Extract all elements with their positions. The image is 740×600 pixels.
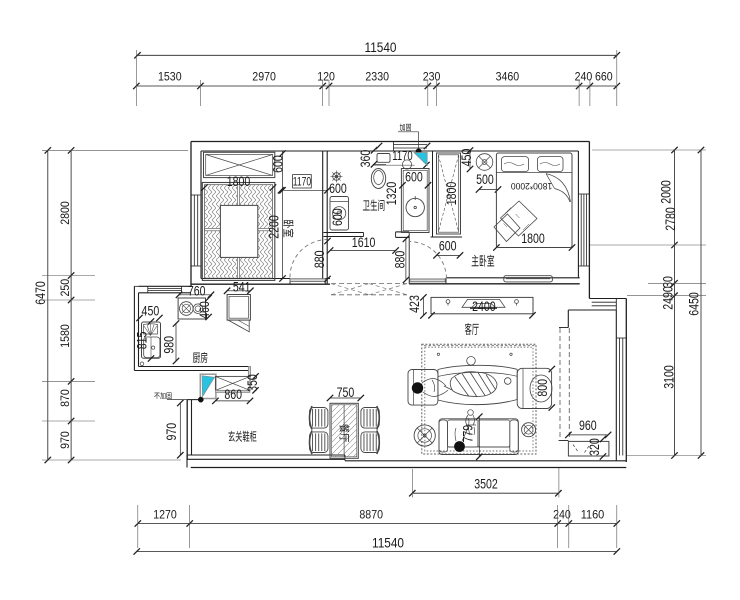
svg-text:6470: 6470 [33, 281, 48, 305]
svg-text:1610: 1610 [352, 235, 376, 250]
svg-text:2970: 2970 [252, 70, 276, 84]
svg-text:600: 600 [330, 208, 345, 226]
svg-text:600: 600 [270, 155, 285, 173]
svg-text:240: 240 [553, 508, 571, 522]
svg-text:600: 600 [405, 169, 423, 184]
svg-text:3100: 3100 [662, 365, 677, 389]
svg-text:3460: 3460 [496, 70, 520, 84]
svg-text:1170: 1170 [293, 174, 312, 188]
svg-text:1800*2000: 1800*2000 [511, 180, 552, 191]
svg-text:2330: 2330 [365, 70, 389, 84]
svg-text:815: 815 [135, 331, 150, 349]
svg-text:1800: 1800 [444, 181, 459, 205]
svg-text:120: 120 [317, 70, 335, 84]
svg-text:860: 860 [224, 387, 242, 402]
svg-text:2780: 2780 [663, 207, 678, 231]
svg-text:1800: 1800 [521, 231, 545, 246]
svg-text:3502: 3502 [474, 476, 498, 491]
svg-text:2200: 2200 [267, 215, 282, 239]
svg-text:1170: 1170 [392, 149, 412, 163]
svg-text:880: 880 [392, 250, 407, 268]
svg-text:2000: 2000 [659, 180, 674, 204]
svg-text:500: 500 [476, 172, 494, 187]
svg-text:1800: 1800 [227, 174, 251, 189]
svg-text:960: 960 [579, 418, 597, 433]
svg-text:660: 660 [595, 70, 613, 84]
svg-text:980: 980 [161, 336, 176, 354]
svg-text:360: 360 [358, 149, 373, 167]
svg-text:230: 230 [423, 70, 441, 84]
svg-text:800: 800 [535, 379, 550, 397]
svg-text:1270: 1270 [153, 508, 177, 522]
svg-text:600: 600 [439, 239, 457, 254]
svg-text:11540: 11540 [372, 535, 404, 550]
svg-text:880: 880 [312, 250, 327, 268]
svg-text:970: 970 [164, 423, 179, 441]
svg-text:30: 30 [661, 276, 676, 288]
svg-text:2490: 2490 [661, 286, 676, 310]
svg-text:2800: 2800 [58, 201, 72, 225]
svg-text:450: 450 [142, 304, 160, 319]
svg-text:8870: 8870 [359, 508, 383, 522]
svg-text:779: 779 [460, 425, 475, 443]
svg-text:750: 750 [337, 385, 355, 400]
svg-text:600: 600 [329, 181, 347, 196]
svg-text:970: 970 [58, 431, 72, 449]
svg-text:760: 760 [188, 284, 206, 299]
svg-text:423: 423 [407, 295, 422, 313]
svg-text:1160: 1160 [581, 508, 605, 522]
svg-text:1580: 1580 [58, 324, 72, 348]
svg-text:320: 320 [587, 438, 602, 456]
svg-text:450: 450 [459, 148, 474, 166]
svg-text:1320: 1320 [384, 181, 399, 205]
svg-text:1530: 1530 [158, 70, 182, 84]
svg-text:11540: 11540 [365, 40, 397, 55]
svg-text:2400: 2400 [472, 299, 496, 314]
svg-text:870: 870 [58, 389, 72, 407]
svg-text:250: 250 [58, 279, 72, 297]
